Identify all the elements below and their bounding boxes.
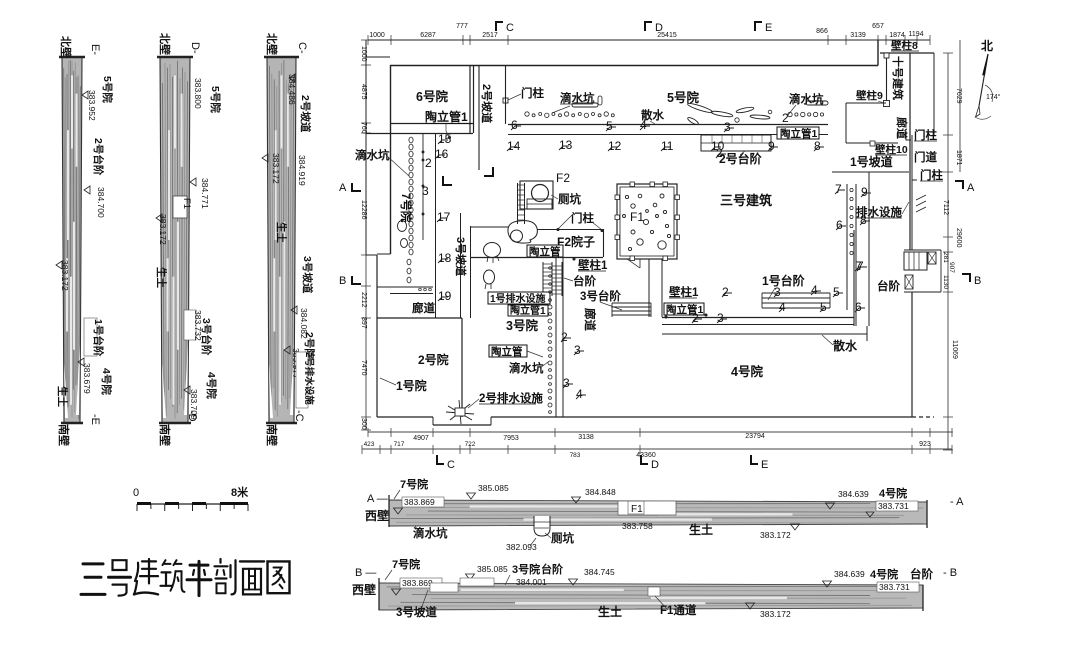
svg-text:4: 4 — [779, 300, 786, 314]
svg-text:7629: 7629 — [955, 88, 962, 104]
svg-text:6287: 6287 — [420, 32, 436, 39]
svg-text:384.848: 384.848 — [585, 487, 616, 497]
svg-text:383.952: 383.952 — [87, 90, 97, 121]
svg-text:C: C — [447, 459, 455, 471]
svg-text:2: 2 — [692, 311, 699, 325]
svg-text:D: D — [655, 22, 663, 34]
svg-text:384.745: 384.745 — [584, 567, 615, 577]
svg-text:生土: 生土 — [689, 522, 713, 537]
svg-text:西壁: 西壁 — [365, 508, 389, 523]
svg-text:5号院: 5号院 — [101, 76, 114, 103]
svg-text:壁柱1: 壁柱1 — [669, 285, 699, 299]
svg-text:1000: 1000 — [369, 32, 385, 39]
svg-text:1号台阶: 1号台阶 — [92, 319, 105, 357]
svg-text:23794: 23794 — [745, 433, 765, 440]
svg-text:廊道: 廊道 — [583, 308, 597, 331]
svg-text:北壁: 北壁 — [158, 33, 172, 55]
svg-text:0: 0 — [133, 487, 139, 499]
svg-text:5号院: 5号院 — [667, 90, 699, 105]
svg-text:16: 16 — [435, 147, 449, 161]
svg-text:9: 9 — [768, 139, 775, 153]
svg-text:383.172: 383.172 — [760, 530, 791, 540]
svg-text:382.093: 382.093 — [506, 542, 537, 552]
svg-text:- B: - B — [943, 567, 957, 579]
svg-text:423: 423 — [364, 441, 375, 448]
svg-text:门柱: 门柱 — [920, 168, 943, 182]
svg-text:3138: 3138 — [578, 434, 594, 441]
svg-text:西壁: 西壁 — [352, 582, 376, 597]
svg-text:2号排水设施: 2号排水设施 — [479, 391, 543, 405]
svg-text:C-: C- — [296, 42, 308, 54]
svg-text:散水: 散水 — [833, 338, 858, 353]
svg-text:6: 6 — [836, 218, 843, 232]
svg-text:门柱: 门柱 — [521, 86, 544, 100]
svg-text:-D: -D — [186, 410, 198, 422]
svg-text:4号院: 4号院 — [205, 372, 218, 399]
svg-text:4号院: 4号院 — [731, 364, 763, 379]
svg-text:383.869: 383.869 — [404, 497, 435, 507]
svg-text:廊道: 廊道 — [412, 301, 435, 315]
svg-text:4号院: 4号院 — [879, 486, 907, 500]
svg-text:384.001: 384.001 — [516, 577, 547, 587]
svg-text:南壁: 南壁 — [57, 424, 71, 446]
svg-text:-E: -E — [89, 414, 101, 425]
svg-text:7号院: 7号院 — [400, 477, 428, 491]
svg-text:783: 783 — [570, 452, 581, 459]
svg-text:6号院: 6号院 — [416, 89, 448, 104]
svg-text:1874: 1874 — [889, 32, 905, 39]
svg-text:E-: E- — [89, 44, 101, 55]
svg-text:生土: 生土 — [598, 604, 622, 619]
svg-text:A: A — [339, 182, 347, 194]
svg-text:2号排水设施: 2号排水设施 — [303, 352, 315, 405]
svg-text:2: 2 — [561, 330, 568, 344]
svg-text:2: 2 — [716, 146, 723, 160]
svg-text:7470: 7470 — [360, 360, 367, 376]
svg-text:2517: 2517 — [482, 32, 498, 39]
svg-text:- A: - A — [950, 496, 964, 508]
svg-text:台阶: 台阶 — [573, 274, 596, 288]
svg-text:923: 923 — [919, 441, 931, 448]
svg-text:生土: 生土 — [275, 222, 288, 243]
svg-text:722: 722 — [465, 441, 476, 448]
svg-text:B: B — [339, 275, 346, 287]
svg-text:3号坡道: 3号坡道 — [301, 256, 314, 294]
svg-text:777: 777 — [456, 23, 468, 30]
svg-text:384.486: 384.486 — [287, 74, 297, 105]
svg-text:滴水坑: 滴水坑 — [355, 148, 390, 162]
svg-text:5: 5 — [820, 300, 827, 314]
svg-text:A: A — [967, 182, 975, 194]
svg-text:三号建筑: 三号建筑 — [720, 193, 772, 208]
svg-text:4907: 4907 — [413, 435, 429, 442]
svg-text:8: 8 — [814, 139, 821, 153]
svg-text:3: 3 — [574, 343, 581, 357]
svg-text:383.172: 383.172 — [158, 214, 168, 245]
svg-text:南壁: 南壁 — [265, 424, 279, 446]
svg-text:43360: 43360 — [636, 452, 656, 459]
svg-text:十号建筑: 十号建筑 — [891, 56, 905, 100]
svg-text:1194: 1194 — [908, 31, 923, 38]
svg-text:陶立管1: 陶立管1 — [780, 127, 817, 140]
svg-text:2号院: 2号院 — [418, 352, 449, 367]
svg-text:3号院: 3号院 — [506, 318, 538, 333]
svg-text:滴水坑: 滴水坑 — [413, 526, 448, 540]
svg-text:3: 3 — [422, 184, 429, 198]
svg-text:19: 19 — [438, 289, 452, 303]
svg-text:717: 717 — [394, 441, 405, 448]
svg-text:南壁: 南壁 — [158, 424, 172, 446]
svg-text:F1: F1 — [181, 198, 192, 209]
svg-text:3139: 3139 — [850, 32, 866, 39]
svg-text:384.639: 384.639 — [834, 569, 865, 579]
svg-text:D: D — [651, 459, 659, 471]
svg-text:6: 6 — [511, 118, 518, 132]
svg-text:174°: 174° — [986, 93, 1001, 101]
svg-text:4: 4 — [640, 118, 647, 132]
svg-text:北壁: 北壁 — [265, 33, 279, 55]
svg-text:1号坡道: 1号坡道 — [850, 154, 893, 169]
svg-text:13: 13 — [559, 138, 573, 152]
svg-text:3号台阶: 3号台阶 — [200, 318, 213, 356]
svg-text:17: 17 — [437, 210, 451, 224]
svg-text:2: 2 — [425, 156, 432, 170]
svg-text:657: 657 — [872, 23, 884, 30]
svg-text:9: 9 — [861, 185, 868, 199]
svg-text:1号院: 1号院 — [396, 378, 427, 393]
svg-text:385.085: 385.085 — [477, 564, 508, 574]
svg-text:11: 11 — [661, 139, 674, 153]
svg-text:897: 897 — [360, 317, 367, 329]
svg-text:8米: 8米 — [231, 485, 249, 499]
svg-text:383.731: 383.731 — [878, 501, 909, 511]
svg-text:384.700: 384.700 — [96, 187, 106, 218]
svg-text:384.639: 384.639 — [838, 489, 869, 499]
svg-text:3号台阶: 3号台阶 — [580, 289, 621, 303]
svg-text:383.679: 383.679 — [82, 363, 92, 394]
svg-text:383.172: 383.172 — [760, 609, 791, 619]
svg-text:384.919: 384.919 — [297, 155, 307, 186]
svg-text:生土: 生土 — [155, 267, 168, 288]
svg-text:3: 3 — [717, 311, 724, 325]
svg-text:台阶: 台阶 — [877, 279, 900, 293]
svg-text:383.869: 383.869 — [402, 578, 433, 588]
svg-text:3号坡道: 3号坡道 — [454, 237, 468, 276]
svg-text:385.085: 385.085 — [478, 483, 509, 493]
svg-text:866: 866 — [816, 28, 828, 35]
svg-text:7: 7 — [835, 182, 842, 196]
svg-text:F1通道: F1通道 — [660, 603, 697, 617]
svg-text:壁柱8: 壁柱8 — [891, 39, 918, 52]
svg-text:4号院: 4号院 — [870, 567, 898, 581]
svg-text:384.771: 384.771 — [200, 178, 210, 209]
svg-text:7953: 7953 — [503, 435, 519, 442]
svg-text:台阶: 台阶 — [910, 567, 933, 581]
svg-text:北: 北 — [981, 38, 993, 53]
svg-text:D-: D- — [189, 42, 201, 54]
svg-text:383.172: 383.172 — [60, 260, 70, 291]
svg-text:门柱: 门柱 — [571, 211, 594, 225]
svg-text:6: 6 — [855, 300, 862, 314]
svg-text:2号台阶: 2号台阶 — [92, 138, 105, 176]
svg-text:陶立管1: 陶立管1 — [510, 304, 546, 317]
svg-text:907: 907 — [948, 262, 955, 273]
svg-text:厕坑: 厕坑 — [551, 531, 574, 545]
svg-text:8: 8 — [860, 213, 867, 227]
svg-text:2: 2 — [722, 285, 729, 299]
svg-text:门道: 门道 — [914, 150, 937, 164]
svg-text:4: 4 — [811, 283, 818, 297]
svg-text:383.758: 383.758 — [622, 521, 653, 531]
svg-text:B —: B — — [355, 567, 376, 579]
svg-text:B: B — [974, 275, 981, 287]
svg-text:1号排水设施: 1号排水设施 — [490, 292, 546, 305]
svg-text:F2: F2 — [556, 171, 570, 185]
svg-text:-C: -C — [293, 410, 305, 422]
svg-text:3号院: 3号院 — [512, 562, 540, 576]
svg-text:壁柱9: 壁柱9 — [856, 89, 883, 102]
svg-text:11069: 11069 — [951, 340, 958, 359]
svg-text:14: 14 — [507, 139, 521, 153]
svg-text:台阶: 台阶 — [541, 562, 564, 576]
svg-text:29600: 29600 — [955, 228, 962, 248]
svg-text:陶立管: 陶立管 — [491, 345, 523, 358]
svg-text:3: 3 — [774, 285, 781, 299]
svg-text:陶立管: 陶立管 — [529, 245, 561, 258]
svg-text:300: 300 — [360, 418, 367, 430]
svg-text:7: 7 — [857, 259, 864, 273]
svg-text:3: 3 — [563, 376, 570, 390]
svg-text:18: 18 — [438, 251, 452, 265]
svg-text:2212: 2212 — [360, 292, 367, 308]
svg-text:F1: F1 — [631, 504, 643, 515]
svg-text:5号院: 5号院 — [209, 86, 222, 113]
svg-text:滴水坑: 滴水坑 — [789, 92, 824, 106]
svg-text:5: 5 — [606, 119, 613, 133]
svg-text:383.172: 383.172 — [271, 153, 281, 184]
svg-text:厕坑: 厕坑 — [558, 192, 581, 206]
svg-text:281: 281 — [942, 252, 949, 263]
svg-text:E: E — [765, 22, 772, 34]
svg-text:门柱: 门柱 — [914, 128, 937, 142]
svg-text:廊道: 廊道 — [895, 117, 909, 139]
svg-text:3: 3 — [724, 120, 731, 134]
svg-text:壁柱1: 壁柱1 — [578, 258, 608, 272]
svg-text:3号坡道: 3号坡道 — [396, 605, 437, 619]
svg-text:A —: A — — [367, 493, 388, 505]
svg-text:7112: 7112 — [942, 200, 949, 215]
svg-text:4号院: 4号院 — [100, 368, 113, 395]
svg-text:2号台阶: 2号台阶 — [719, 151, 763, 166]
svg-text:7号院: 7号院 — [399, 193, 413, 223]
svg-text:4: 4 — [576, 387, 583, 401]
svg-text:北壁: 北壁 — [59, 36, 73, 58]
svg-text:生土: 生土 — [56, 386, 69, 407]
svg-text:383.800: 383.800 — [193, 78, 203, 109]
svg-text:C: C — [506, 22, 514, 34]
svg-text:1号台阶: 1号台阶 — [762, 273, 806, 288]
svg-text:滴水坑: 滴水坑 — [509, 361, 544, 375]
svg-text:1130: 1130 — [942, 275, 949, 289]
svg-text:2号坡道: 2号坡道 — [480, 84, 494, 123]
svg-text:12: 12 — [608, 139, 622, 153]
svg-text:陶立管1: 陶立管1 — [425, 109, 468, 124]
svg-text:E: E — [761, 459, 768, 471]
svg-text:1871: 1871 — [955, 150, 962, 166]
svg-text:F1: F1 — [630, 210, 644, 224]
svg-text:2号坡道: 2号坡道 — [299, 95, 312, 133]
svg-text:383.731: 383.731 — [879, 582, 910, 592]
svg-text:5: 5 — [833, 285, 840, 299]
svg-text:7号院: 7号院 — [392, 557, 420, 571]
